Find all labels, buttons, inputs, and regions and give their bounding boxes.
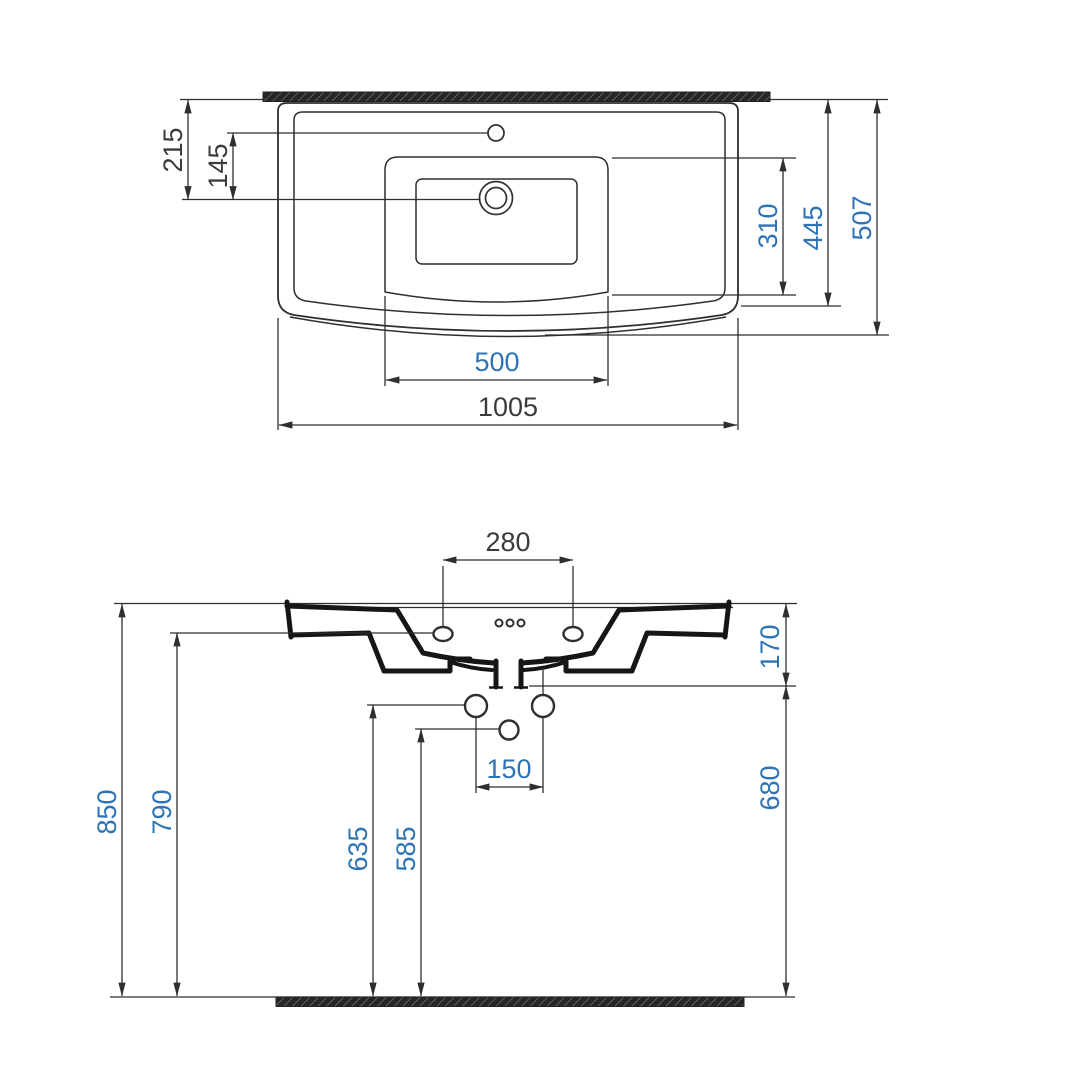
dim-label-145: 145	[203, 143, 233, 188]
dim-label-680: 680	[755, 765, 785, 810]
dim-label-150: 150	[486, 754, 531, 784]
dim-label-635: 635	[343, 826, 373, 871]
dim-label-445: 445	[798, 205, 828, 250]
dim-label-215: 215	[158, 127, 188, 172]
dim-label-500: 500	[474, 347, 519, 377]
dim-label-507: 507	[847, 195, 877, 240]
dim-label-1005: 1005	[478, 392, 538, 422]
dim-label-280: 280	[485, 527, 530, 557]
dim-label-790: 790	[147, 789, 177, 834]
floor-section-hatch	[276, 997, 744, 1007]
dim-label-850: 850	[92, 789, 122, 834]
dim-label-170: 170	[755, 624, 785, 669]
dim-label-310: 310	[753, 203, 783, 248]
technical-drawing-page: 215 145 310 445 507 500 1005	[0, 0, 1080, 1080]
washbasin-dimension-drawing: 215 145 310 445 507 500 1005	[0, 0, 1080, 1080]
dim-label-585: 585	[391, 826, 421, 871]
wall-section-hatch	[263, 92, 770, 102]
